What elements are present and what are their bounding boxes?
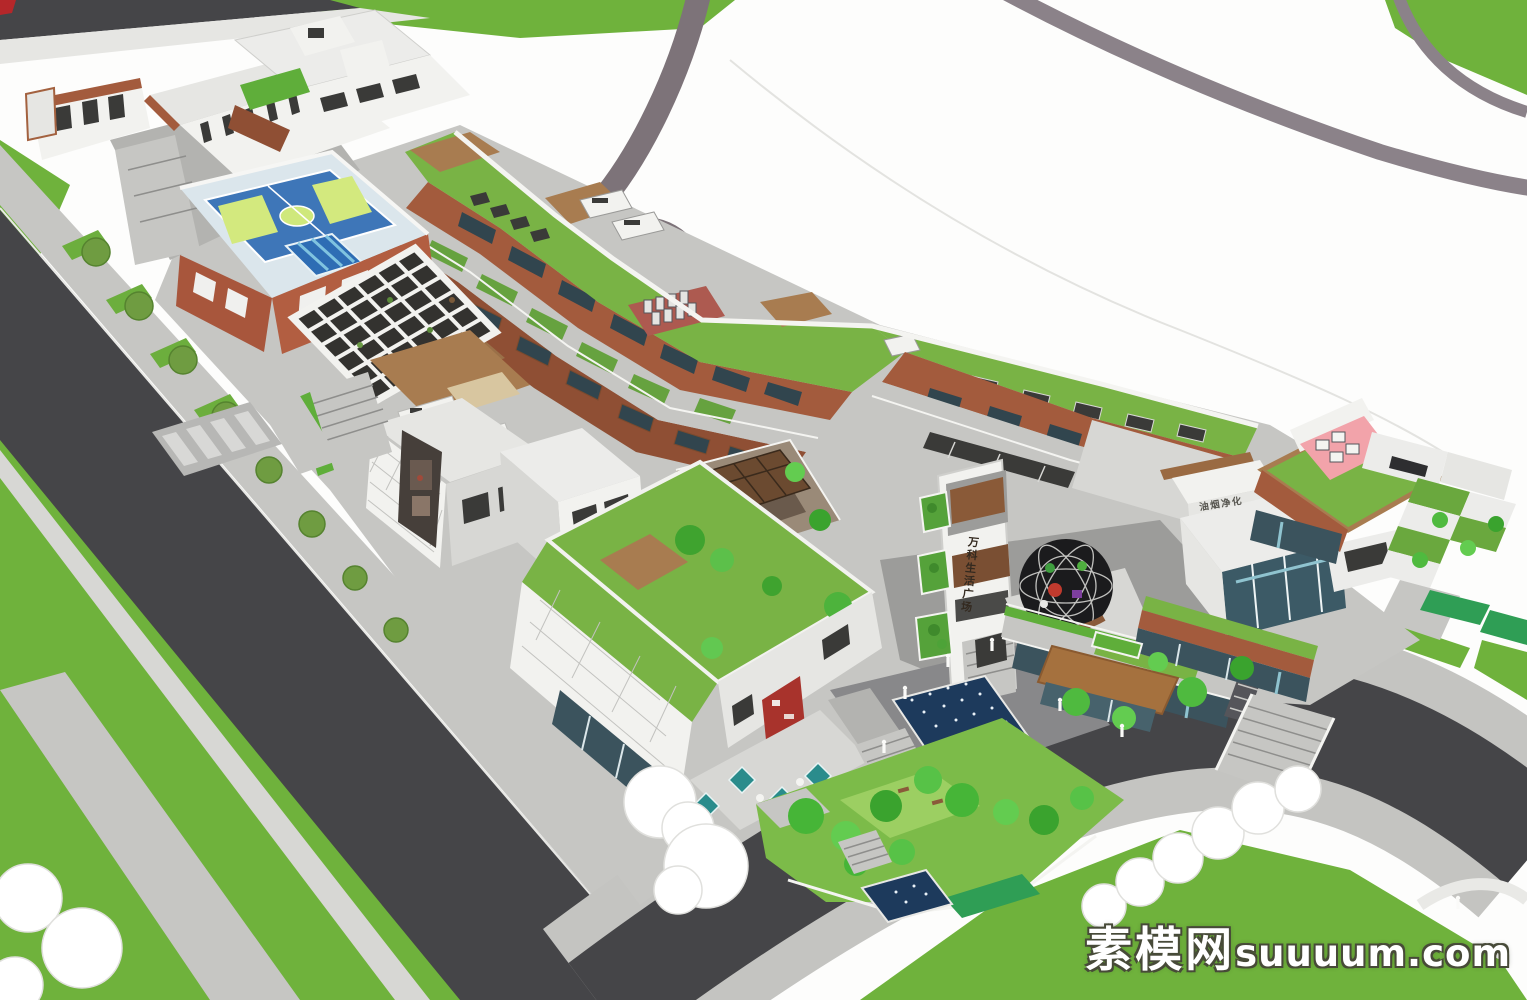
aerial-render-scene xyxy=(0,0,1527,1000)
watermark: 素模网suuuum.com xyxy=(1085,911,1511,980)
tower-planters xyxy=(916,492,952,660)
rendering-canvas: 万科生活广场 油烟净化 素模网suuuum.com xyxy=(0,0,1527,1000)
watermark-site-name: 素模网 xyxy=(1085,911,1235,980)
watermark-domain: suuuum.com xyxy=(1235,932,1511,975)
